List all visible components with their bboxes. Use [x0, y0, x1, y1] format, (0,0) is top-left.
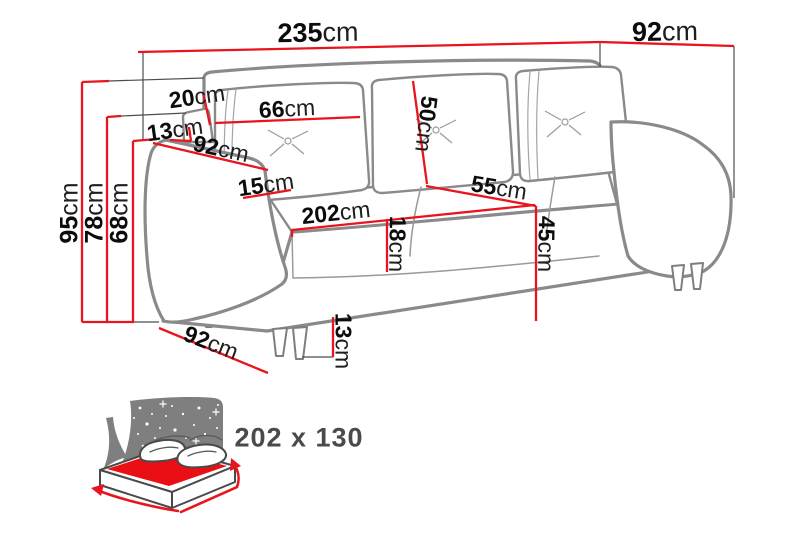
- sofa-left-armrest: [145, 140, 286, 322]
- dim-label-back-cushion-height: 50cm: [411, 95, 441, 154]
- sofa-bed-icon: [91, 397, 241, 512]
- dim-label-total-width: 235cm: [277, 19, 359, 47]
- dim-label-total-depth: 92cm: [632, 18, 699, 46]
- dim-label-armrest-height: 68cm: [108, 182, 133, 243]
- dim-label-back-cushion-width: 66cm: [258, 96, 315, 122]
- dim-label-leg-height: 13cm: [332, 313, 355, 369]
- dim-label-seat-cushion-height: 18cm: [385, 216, 409, 273]
- dim-label-total-height: 95cm: [58, 182, 83, 243]
- dim-label-back-height: 78cm: [83, 182, 108, 243]
- sofa-right-armrest: [611, 122, 731, 277]
- sofa-dimension-diagram: 235cm 92cm 95cm 78cm 68cm 20cm 13cm 66cm…: [0, 0, 800, 533]
- dim-label-seat-height: 45cm: [534, 216, 558, 273]
- sleeping-area-size-label: 202 x 130: [234, 423, 363, 454]
